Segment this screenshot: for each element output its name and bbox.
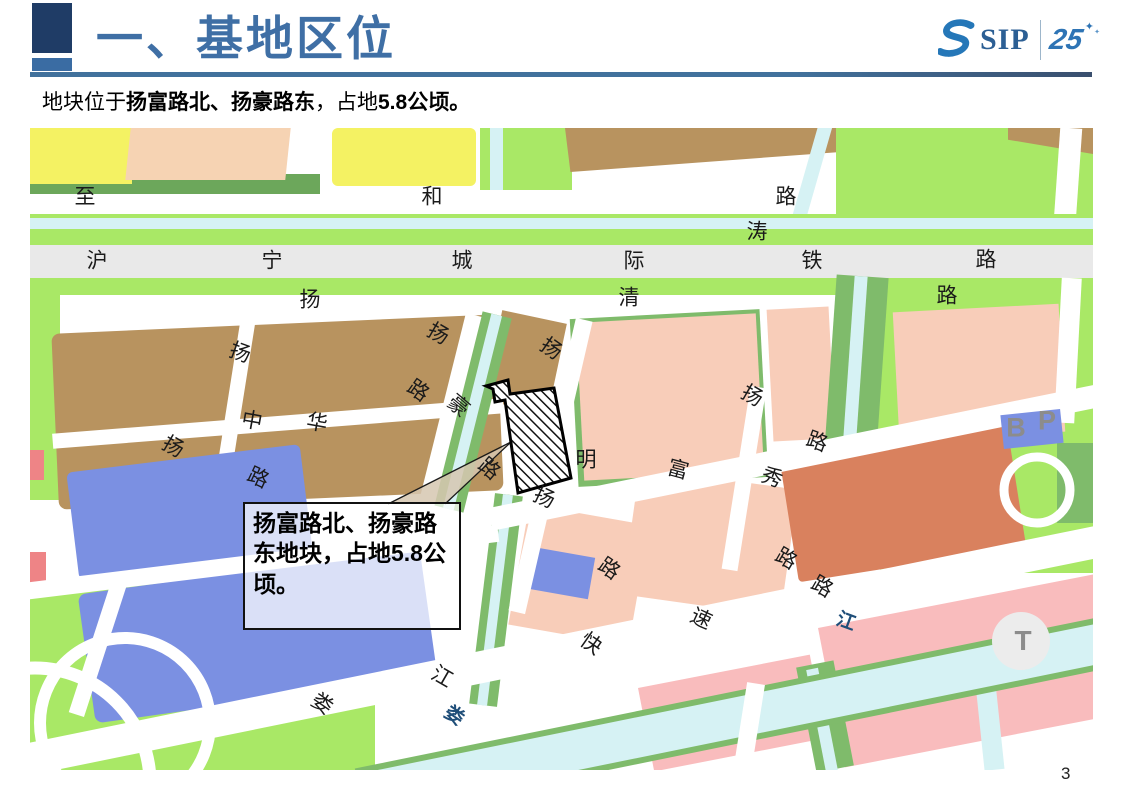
title-accent-dark bbox=[32, 3, 72, 53]
star-icon: ✦ bbox=[1085, 20, 1094, 33]
map-road-label: 路 bbox=[776, 187, 797, 208]
title-rule bbox=[30, 72, 1092, 77]
sip-brand-text: SIP bbox=[980, 23, 1030, 57]
sip-swirl-icon bbox=[938, 17, 978, 64]
map-block bbox=[30, 128, 132, 184]
map-block bbox=[1000, 409, 1063, 449]
map-block bbox=[992, 612, 1050, 670]
page-number: 3 bbox=[1061, 764, 1070, 784]
site-callout: 扬富路北、扬豪路东地块，占地5.8公顷。 bbox=[243, 502, 461, 630]
sip-logo: SIP 25 ✦ ✦ bbox=[938, 15, 1092, 65]
map-block bbox=[125, 128, 290, 180]
map-block bbox=[332, 128, 476, 186]
subtitle: 地块位于扬富路北、扬豪路东，占地5.8公顷。 bbox=[42, 86, 470, 116]
map-block bbox=[30, 218, 1093, 229]
map-block bbox=[30, 245, 1093, 278]
page-title: 一、基地区位 bbox=[96, 0, 396, 69]
map-block bbox=[767, 306, 836, 441]
map-road-label: 娄 bbox=[441, 703, 467, 729]
anniversary-number: 25 bbox=[1047, 26, 1084, 55]
location-map: 至和路涛沪宁城际铁路扬清路扬中华路扬豪路扬路扬明路扬富路扬秀路娄江快速路娄江BP… bbox=[30, 128, 1093, 770]
map-road-label: 和 bbox=[422, 187, 443, 208]
map-block bbox=[565, 128, 837, 172]
site-callout-text: 扬富路北、扬豪路东地块，占地5.8公顷。 bbox=[253, 510, 446, 597]
title-accent-light bbox=[32, 58, 72, 71]
logo-divider bbox=[1040, 20, 1041, 60]
map-block bbox=[1057, 443, 1093, 523]
star-icon: ✦ bbox=[1094, 28, 1100, 36]
map-block bbox=[576, 313, 764, 480]
map-block bbox=[30, 450, 44, 480]
slide: 一、基地区位 SIP 25 ✦ ✦ 地块位于扬富路北、扬豪路东，占地5.8公顷。 bbox=[0, 0, 1123, 794]
anniversary-logo: 25 ✦ ✦ bbox=[1050, 26, 1092, 55]
map-block bbox=[490, 128, 503, 190]
